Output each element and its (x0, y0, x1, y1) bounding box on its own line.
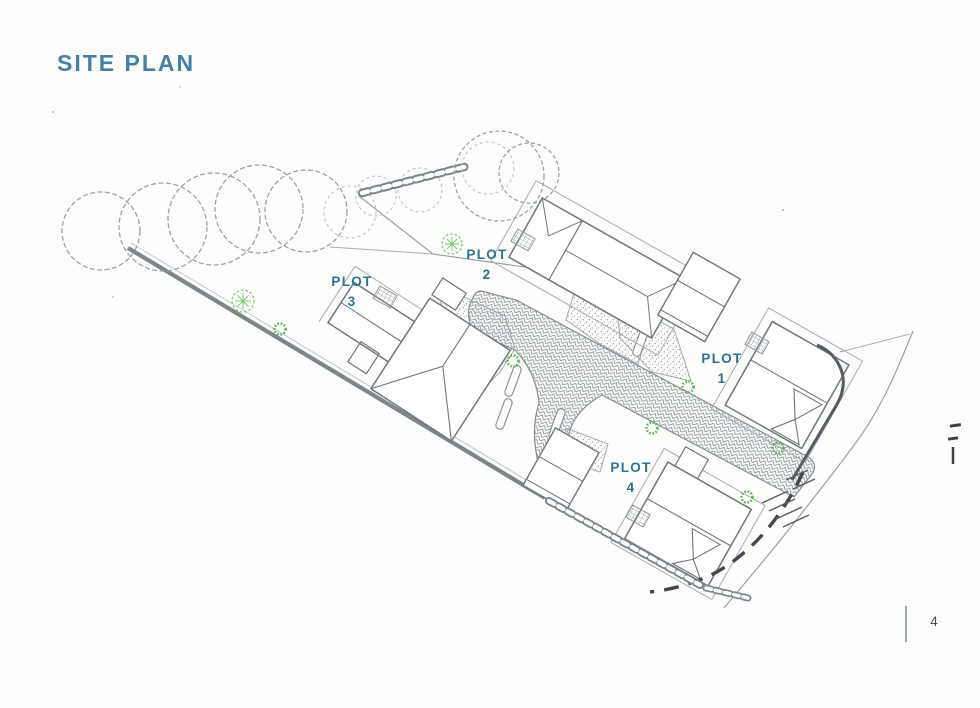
plot-3-label: PLOT 3 (320, 272, 384, 311)
plot-2-label: PLOT 2 (455, 245, 519, 284)
scan-edge-marks (948, 423, 961, 464)
site-plan-drawing (0, 0, 980, 708)
page-number: 4 (922, 614, 946, 629)
scanned-site-plan-page: SITE PLAN (0, 0, 980, 708)
page-number-divider (905, 606, 907, 642)
trees-west-cluster (62, 165, 442, 271)
plot-4-label: PLOT 4 (599, 458, 663, 497)
plot-1-label: PLOT 1 (690, 349, 754, 388)
hedge-line-north (362, 166, 468, 193)
shrub (508, 356, 519, 367)
tree-symbol (232, 290, 254, 312)
